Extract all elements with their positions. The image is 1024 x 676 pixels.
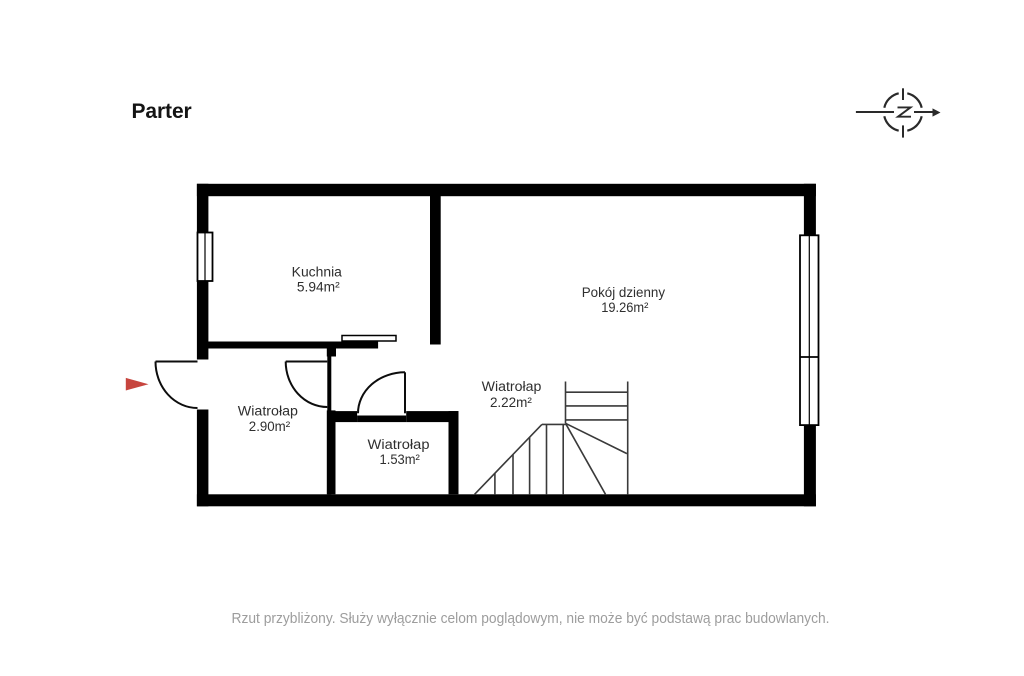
svg-text:Rzut przybliżony. Służy wyłącz: Rzut przybliżony. Służy wyłącznie celom … <box>232 610 830 627</box>
svg-text:Kuchnia: Kuchnia <box>292 265 343 280</box>
svg-text:Wiatrołap: Wiatrołap <box>238 404 298 419</box>
svg-text:2.90m²: 2.90m² <box>249 419 291 434</box>
svg-text:5.94m²: 5.94m² <box>297 280 340 295</box>
svg-text:Parter: Parter <box>132 100 192 123</box>
svg-text:2.22m²: 2.22m² <box>490 395 532 410</box>
svg-text:1.53m²: 1.53m² <box>380 452 421 467</box>
svg-text:19.26m²: 19.26m² <box>601 300 649 315</box>
svg-text:Wiatrołap: Wiatrołap <box>368 437 430 452</box>
svg-text:Pokój dzienny: Pokój dzienny <box>582 285 666 300</box>
svg-text:Wiatrołap: Wiatrołap <box>482 379 542 394</box>
